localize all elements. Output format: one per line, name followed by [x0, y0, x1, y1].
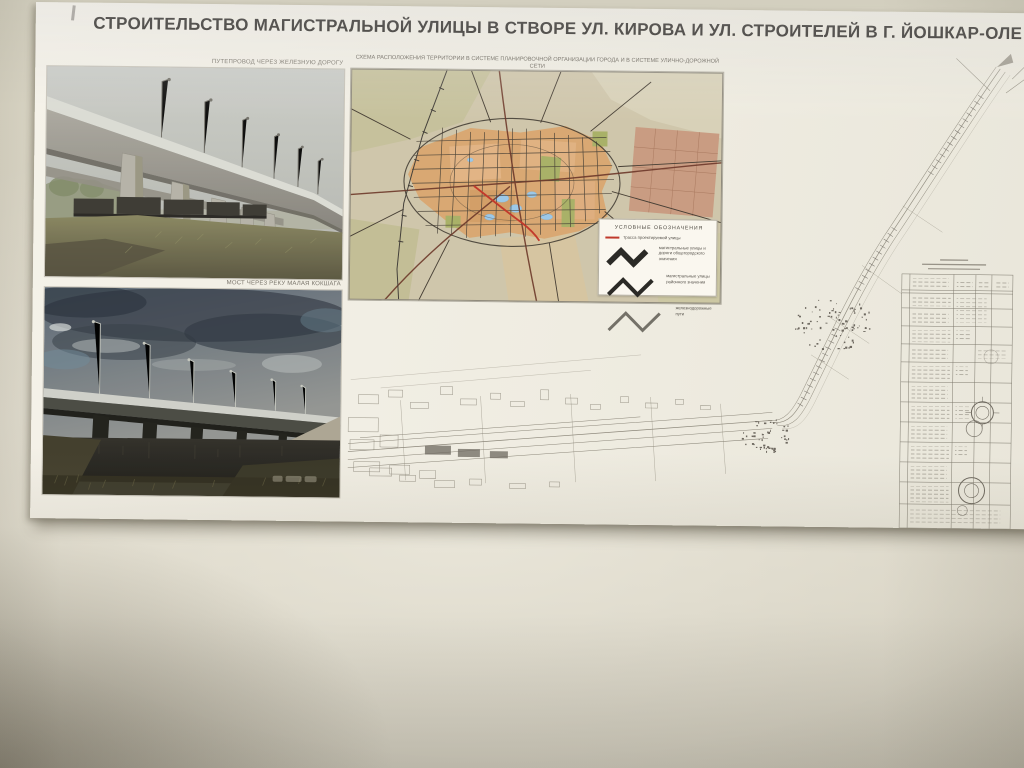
structures-table: [899, 259, 1013, 529]
table-text-scribble: [910, 278, 1009, 525]
route-corridor: [768, 56, 1024, 431]
photo-bridge-caption: МОСТ ЧЕРЕЗ РЕКУ МАЛАЯ КОКШАГА: [45, 278, 341, 287]
photo-bridge-art: [42, 287, 341, 497]
photo-bridge-river: [42, 287, 341, 497]
photo-overpass-caption: ПУТЕПРОВОД ЧЕРЕЗ ЖЕЛЕЗНУЮ ДОРОГУ: [47, 57, 343, 66]
street-band: [348, 352, 773, 487]
building-speckles: [742, 299, 871, 454]
construction-poster: СТРОИТЕЛЬСТВО МАГИСТРАЛЬНОЙ УЛИЦЫ В СТВО…: [30, 2, 1024, 529]
poster-title: СТРОИТЕЛЬСТВО МАГИСТРАЛЬНОЙ УЛИЦЫ В СТВО…: [72, 13, 1024, 44]
photo-overpass-art: [45, 66, 344, 279]
route-plan-art: [339, 50, 1024, 530]
corridor-hatching: [797, 93, 983, 408]
photo-overpass-railway: [45, 66, 344, 279]
route-plan-drawing: [339, 50, 1024, 530]
dark-blocks: [425, 445, 508, 458]
